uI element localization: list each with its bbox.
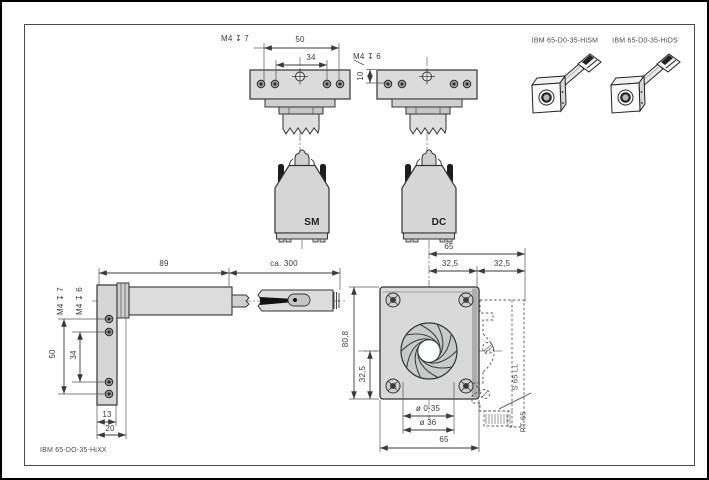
dim-65-width: 65	[439, 436, 448, 444]
dim-34-side: 34	[70, 350, 78, 359]
rail-profile-dashed	[472, 300, 531, 427]
model-label-hism: IBM 65-D0-35-HiSM	[532, 38, 598, 45]
rail-label-rt65: RT 65	[519, 411, 527, 432]
side-view	[92, 283, 347, 405]
footer-model-label: IBM 65-DO-35-HiXX	[40, 447, 107, 454]
dim-bore-36: ø 36	[420, 419, 437, 427]
iris-diaphragm	[401, 323, 457, 379]
dim-50-top: 50	[295, 36, 304, 44]
dim-13-side: 13	[102, 411, 111, 419]
dim-cable-length: ca. 300	[270, 260, 298, 268]
dim-325-right: 32,5	[494, 260, 510, 268]
dim-aperture-range: ø 0-35	[416, 405, 440, 413]
dim-34-top: 34	[306, 54, 315, 62]
dim-325-center: 32,5	[359, 366, 367, 382]
dim-65-rail-distance: 65	[444, 243, 453, 251]
top-view-right-plate	[377, 57, 477, 152]
connector-label-dc: DC	[432, 218, 447, 228]
front-view	[358, 250, 502, 420]
dim-thread-m4x6-top: M4 ↧ 6	[353, 53, 381, 61]
model-label-hids: IBM 65-D0-35-HiDS	[612, 38, 678, 45]
dim-thread-m4x7-side: M4 ↧ 7	[57, 287, 65, 315]
dim-325-left: 32,5	[442, 260, 458, 268]
dim-thread-m4x6-side: M4 ↧ 6	[76, 287, 84, 315]
dim-50-side: 50	[49, 349, 57, 358]
connector-label-sm: SM	[304, 218, 319, 228]
dim-89-side: 89	[159, 260, 168, 268]
dim-thread-m4x7-top: M4 ↧ 7	[221, 35, 249, 43]
isometric-hids	[611, 54, 680, 113]
dim-20-side: 20	[105, 425, 114, 433]
catalog-drawing-page: M4 ↧ 7 50 34 M4 ↧ 6 10 IBM 65-D0-35-HiSM…	[0, 0, 709, 480]
dim-10-top: 10	[357, 71, 365, 80]
rail-label-s65ll: S 65 LL	[511, 363, 519, 390]
dim-808-height: 80,8	[342, 331, 350, 347]
connector-hood-dc	[402, 150, 456, 249]
